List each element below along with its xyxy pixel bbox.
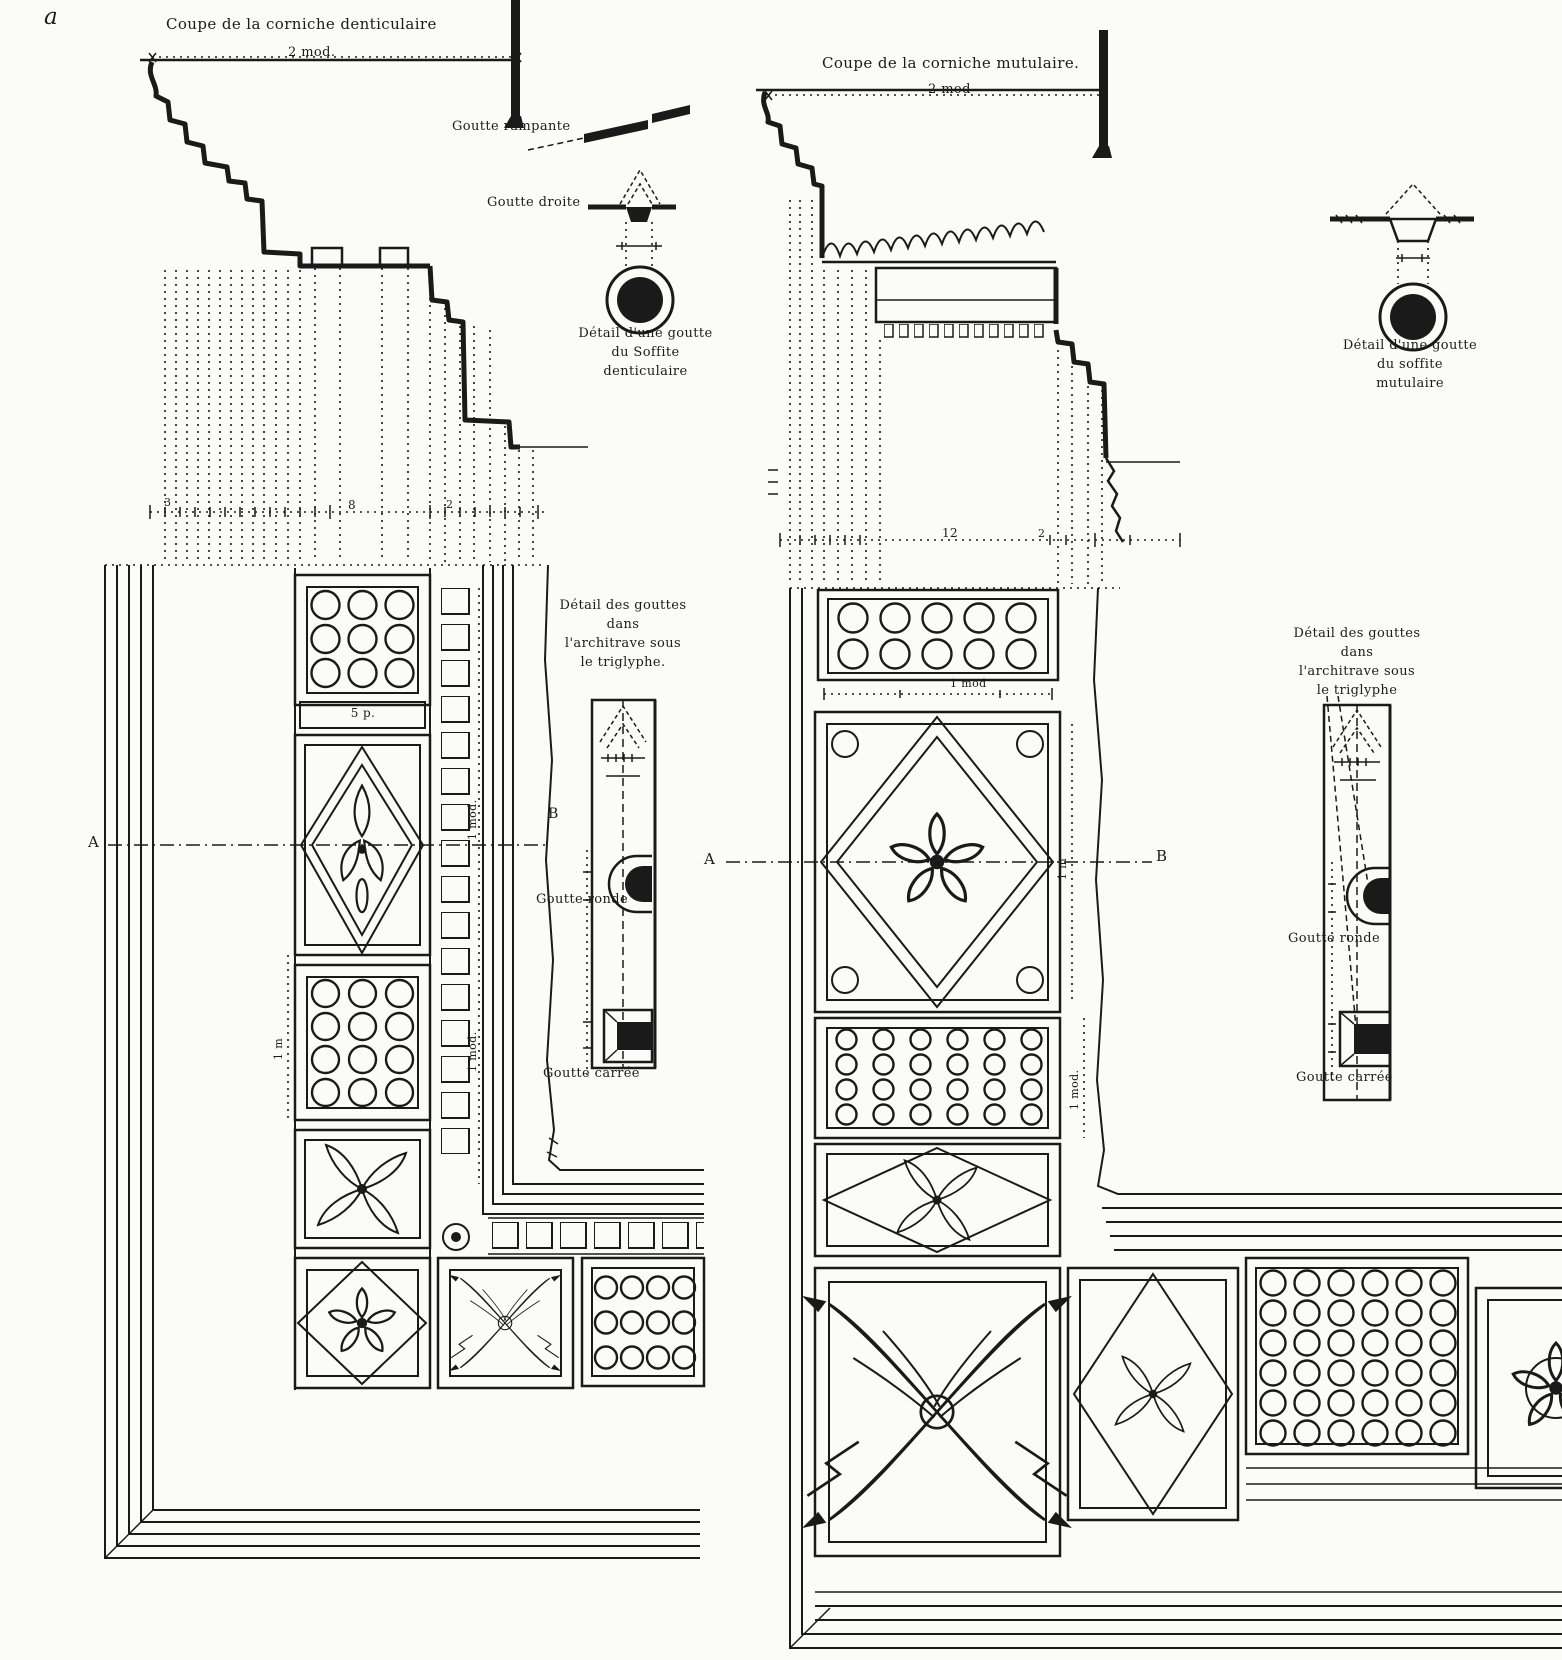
right-dim-1mod: 1 mod xyxy=(950,677,987,690)
left-triglyph-caption-4: le triglyphe. xyxy=(537,655,709,670)
right-goutta-detail-caption-2: du soffite xyxy=(1320,357,1500,372)
right-soffit-plan xyxy=(726,588,1562,1648)
right-title: Coupe de la corniche mutulaire. xyxy=(822,54,1079,72)
engraving-canvas xyxy=(0,0,1562,1660)
right-goutte-carree-label: Goutte carrée xyxy=(1296,1070,1393,1085)
rosette-ornament xyxy=(1511,1343,1562,1428)
rosette-ornament xyxy=(328,1289,397,1354)
left-goutte-ronde-label: Goutte ronde xyxy=(536,892,628,907)
left-triglyph-caption-2: dans xyxy=(537,617,709,632)
right-dim-1m: 1 m xyxy=(1056,858,1069,880)
left-dim-1mod-lower: 1 mod. xyxy=(466,1032,479,1073)
rosette-ornament xyxy=(889,814,985,905)
left-triglyph-caption-1: Détail des gouttes xyxy=(537,598,709,613)
right-triglyph-detail xyxy=(1324,696,1390,1100)
left-cornice-section xyxy=(140,0,588,562)
left-dim-8: 8 xyxy=(348,498,356,512)
foliate-cross-ornament xyxy=(897,1160,976,1239)
right-section-marker-b: B xyxy=(1156,847,1167,865)
left-dim-2: 2 xyxy=(446,498,453,511)
left-triglyph-detail xyxy=(583,700,655,1075)
right-triglyph-caption-3: l'architrave sous xyxy=(1268,664,1446,679)
left-goutte-rampante-label: Goutte rampante xyxy=(452,119,571,134)
right-goutte-ronde-label: Goutte ronde xyxy=(1288,931,1380,946)
right-goutta-detail-caption-3: mutulaire xyxy=(1320,376,1500,391)
left-dim-3: 3 xyxy=(164,496,171,509)
foliate-cross-ornament xyxy=(1116,1357,1191,1432)
right-scale-label: 2 mod xyxy=(928,82,971,97)
right-triglyph-caption-4: le triglyphe xyxy=(1268,683,1446,698)
foliate-cross-ornament xyxy=(318,1145,406,1233)
left-dim-1mod-upper: 1 mod. xyxy=(466,800,479,841)
right-triglyph-caption-2: dans xyxy=(1268,645,1446,660)
figure-label: a xyxy=(44,4,58,30)
thunderbolt-ornament xyxy=(802,1296,1072,1528)
left-dim-1m: 1 m xyxy=(272,1038,285,1060)
left-scale-label: 2 mod. xyxy=(288,45,335,60)
left-goutta-plan-detail xyxy=(607,267,673,333)
left-section-marker-b: B xyxy=(548,806,559,822)
right-triglyph-caption-1: Détail des gouttes xyxy=(1268,626,1446,641)
left-goutta-detail-caption-1: Détail d'une goutte xyxy=(558,326,733,341)
thunderbolt-ornament xyxy=(449,1275,561,1371)
left-goutta-detail-caption-2: du Soffite xyxy=(558,345,733,360)
right-dim-12: 12 xyxy=(942,526,958,540)
left-dim-5p: 5 p. xyxy=(338,706,388,720)
left-goutte-carree-label: Goutte carrée xyxy=(543,1066,640,1081)
fleuron-ornament xyxy=(341,786,382,913)
right-dim-2: 2 xyxy=(1038,527,1045,540)
left-title: Coupe de la corniche denticulaire xyxy=(166,15,437,33)
right-goutta-plan-detail xyxy=(1330,184,1474,350)
left-section-marker-a: A xyxy=(88,833,99,851)
engraving-plate: a Coupe de la corniche denticulaire 2 mo… xyxy=(0,0,1562,1660)
left-triglyph-caption-3: l'architrave sous xyxy=(537,636,709,651)
left-goutte-droite-label: Goutte droite xyxy=(487,195,581,210)
right-section-marker-a: A xyxy=(704,850,715,868)
right-goutta-detail-caption-1: Détail d'une goutte xyxy=(1320,338,1500,353)
left-goutta-detail-caption-3: denticulaire xyxy=(558,364,733,379)
right-cornice-section xyxy=(756,30,1180,584)
right-dim-1mod-v: 1 mod. xyxy=(1068,1070,1081,1111)
